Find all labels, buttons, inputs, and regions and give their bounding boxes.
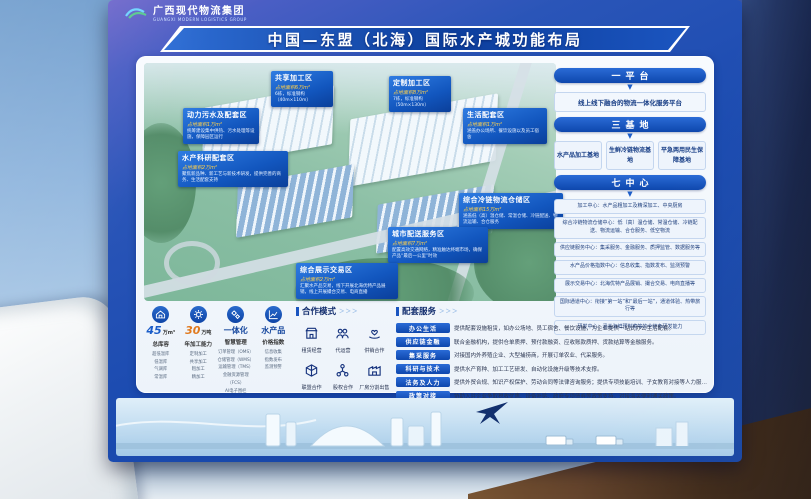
title-banner: 中国—东盟（北海）国际水产城功能布局 — [160, 26, 690, 52]
service-desc: 联合金融机构，提供仓单质押、预付款融资、应收账款质押、货款结算等金融服务。 — [454, 338, 658, 346]
service-row: 法务及人力 提供外贸合规、知识产权保护、劳动合同等法律咨询服务；提供专项技能培训… — [396, 377, 708, 387]
zone-label-shared-processing: 共享加工区 占地面积6万m² 6栋，标准钢构（40m×110m） — [271, 71, 333, 107]
display-board: 广西现代物流集团 GUANGXI MODERN LOGISTICS GROUP … — [108, 0, 742, 462]
center-item: 水产品价格指数中心：信息收集、指数发布、监测预警 — [554, 260, 706, 275]
center-item: 综合冷链物流仓储中心：低（高）温仓储、常温仓储、冷链配送、物流运输、合仓服务、低… — [554, 217, 706, 239]
board-title: 中国—东盟（北海）国际水产城功能布局 — [160, 26, 690, 52]
stat-item: 定制加工 — [180, 351, 218, 359]
service-row: 科研与技术 提供水产育种、加工工艺研发、自动化设施升级等技术支撑。 — [396, 364, 708, 374]
zone-label-living-support: 生活配套区 占地面积1万m² 涵盖办公场所、餐饮设施以及员工宿舍 — [463, 108, 547, 144]
service-desc: 提供水产育种、加工工艺研发、自动化设施升级等技术支撑。 — [454, 365, 603, 373]
coop-item-operation: 代运营 — [327, 326, 358, 354]
stat-capacity: 30万吨 年加工能力 定制加工 共享加工 粗加工 精加工 — [180, 306, 218, 390]
down-arrow-icon: ▼ — [554, 190, 706, 199]
stat-item: 运输管理（TMS） — [217, 364, 255, 372]
coop-item-factory-sale: 厂房分割出售 — [359, 363, 390, 391]
zone-label-power-sewage: 动力污水及配套区 占地面积1万m² 统筹建设集中供热、污水处理等设施，保障园区运… — [183, 108, 259, 144]
centers-header: 七中心 — [554, 175, 706, 190]
store-icon — [304, 326, 319, 341]
summary-column: 一平台 ▼ 线上线下融合的物流一体化服务平台 三基地 ▼ 水产品加工基地 生鲜冷… — [554, 66, 706, 335]
bases-header: 三基地 — [554, 117, 706, 132]
stat-smart-management: 一体化 智慧管理 订单管理（OMS） 仓储管理（WMS） 运输管理（TMS） 金… — [217, 306, 255, 390]
stat-item: 订单管理（OMS） — [217, 349, 255, 357]
stat-storage: 45万m³ 总库容 超低温库 低温库 气调库 常温库 — [142, 306, 180, 390]
service-label: 供应链金融 — [396, 337, 450, 347]
service-desc: 对接国内外养殖企业、大型捕捞商，开展订单农业、代采服务。 — [454, 351, 608, 359]
service-label: 办公生活 — [396, 323, 450, 333]
factory-icon — [367, 363, 382, 378]
stat-item: 指数发布 — [255, 357, 293, 365]
logo: 广西现代物流集团 GUANGXI MODERN LOGISTICS GROUP — [124, 6, 247, 22]
service-row: 集采服务 对接国内外养殖企业、大型捕捞商，开展订单农业、代采服务。 — [396, 350, 708, 360]
key-stats: 45万m³ 总库容 超低温库 低温库 气调库 常温库 30万吨 年加工能力 — [142, 306, 292, 390]
bases-row: 水产品加工基地 生鲜冷链物流基地 平急两用民生保障基地 — [554, 141, 706, 170]
zone-labels: 共享加工区 占地面积6万m² 6栋，标准钢构（40m×110m） 定制加工区 占… — [144, 63, 556, 301]
center-item: 加工中心：水产品粗加工及精深加工、中央厨房 — [554, 199, 706, 214]
section-marker — [296, 307, 299, 316]
logo-name: 广西现代物流集团 — [153, 6, 247, 17]
center-item: 供应链服务中心：集采服务、金融服务、质押监管、数据服务等 — [554, 242, 706, 257]
chevrons-decoration: ＞＞＞ — [339, 307, 359, 315]
chart-icon — [265, 306, 282, 323]
stat-item: 气调库 — [142, 366, 180, 374]
zone-label-exhibition-trade: 综合展示交易区 占地面积2万m² 汇聚水产品交易，线下开展北海优特产品展销，线上… — [296, 263, 398, 299]
cube-icon — [304, 363, 319, 378]
org-chart-icon — [335, 363, 350, 378]
gears-icon — [227, 306, 244, 323]
service-desc: 提供配套设施租赁，如办公场地、员工宿舍、餐饮设施，为企业提供一站式办公生活配套。 — [454, 324, 674, 332]
stat-item: 金融资源管理（FCS） — [217, 372, 255, 387]
services-header: 配套服务 — [402, 305, 436, 317]
stat-item: 共享加工 — [180, 359, 218, 367]
service-label: 法务及人力 — [396, 377, 450, 387]
coop-item-equity: 股权合作 — [327, 363, 358, 391]
coop-item-leasing: 租赁经营 — [296, 326, 327, 354]
people-icon — [335, 326, 350, 341]
content-panel: 共享加工区 占地面积6万m² 6栋，标准钢构（40m×110m） 定制加工区 占… — [136, 56, 714, 393]
coop-item-alliance: 联盟合作 — [296, 363, 327, 391]
cooperation-section: 合作模式 ＞＞＞ 租赁经营 代运营 供销合作 — [296, 305, 390, 391]
stat-item: 监测预警 — [255, 364, 293, 372]
stat-item: 精加工 — [180, 374, 218, 382]
zone-label-city-distribution: 城市配送服务区 占地面积7万m² 配置高效交通网络，精准触达终端市场，确保产品“… — [388, 227, 488, 263]
services-section: 配套服务 ＞＞＞ 办公生活 提供配套设施租赁，如办公场地、员工宿舍、餐饮设施，为… — [396, 305, 708, 401]
service-row: 办公生活 提供配套设施租赁，如办公场地、员工宿舍、餐饮设施，为企业提供一站式办公… — [396, 323, 708, 333]
stat-item: 常温库 — [142, 374, 180, 382]
cityscape-art — [116, 398, 734, 456]
base-item: 平急两用民生保障基地 — [658, 141, 706, 170]
zone-label-custom-processing: 定制加工区 占地面积8万m² 7栋，标准钢构（50m×130m） — [389, 76, 451, 112]
cooperation-header: 合作模式 — [302, 305, 336, 317]
section-marker — [396, 307, 399, 316]
gear-icon — [190, 306, 207, 323]
stat-item: AI电子围栏 — [217, 388, 255, 396]
bottom-illustration — [116, 398, 734, 456]
down-arrow-icon: ▼ — [554, 83, 706, 92]
center-item: 展示交易中心：北海优特产品展销、撮合交易、电商直播等 — [554, 278, 706, 293]
base-item: 生鲜冷链物流基地 — [606, 141, 654, 170]
stat-item: 超低温库 — [142, 351, 180, 359]
platform-header: 一平台 — [554, 68, 706, 83]
stat-price-index: 水产品 价格指数 信息收集 指数发布 监测预警 — [255, 306, 293, 390]
base-item: 水产品加工基地 — [554, 141, 602, 170]
stat-item: 低温库 — [142, 359, 180, 367]
logo-subtitle: GUANGXI MODERN LOGISTICS GROUP — [153, 17, 247, 22]
platform-text: 线上线下融合的物流一体化服务平台 — [554, 92, 706, 112]
stat-item: 信息收集 — [255, 349, 293, 357]
event-photo: 广西现代物流集团 GUANGXI MODERN LOGISTICS GROUP … — [0, 0, 811, 499]
zone-label-cold-chain-warehouse: 综合冷链物流仓储区 占地面积15万m² 涵盖低（高）温仓储、常温仓储、冷链配送、… — [459, 193, 563, 229]
service-row: 供应链金融 联合金融机构，提供仓单质押、预付款融资、应收账款质押、货款结算等金融… — [396, 337, 708, 347]
warehouse-icon — [152, 306, 169, 323]
chevrons-decoration: ＞＞＞ — [439, 307, 459, 315]
service-label: 科研与技术 — [396, 364, 450, 374]
zone-label-research-support: 水产科研配套区 占地面积2万m² 聚焦新品种、新工艺与新技术研发，提供完善的商务… — [178, 151, 288, 187]
service-label: 集采服务 — [396, 350, 450, 360]
coop-item-supply: 供销合作 — [359, 326, 390, 354]
handshake-heart-icon — [367, 326, 382, 341]
down-arrow-icon: ▼ — [554, 132, 706, 141]
service-desc: 提供外贸合规、知识产权保护、劳动合同等法律咨询服务；提供专项技能培训、子女教育对… — [454, 378, 708, 386]
stat-item: 粗加工 — [180, 366, 218, 374]
logo-swoosh-icon — [124, 6, 148, 22]
stat-item: 仓储管理（WMS） — [217, 357, 255, 365]
